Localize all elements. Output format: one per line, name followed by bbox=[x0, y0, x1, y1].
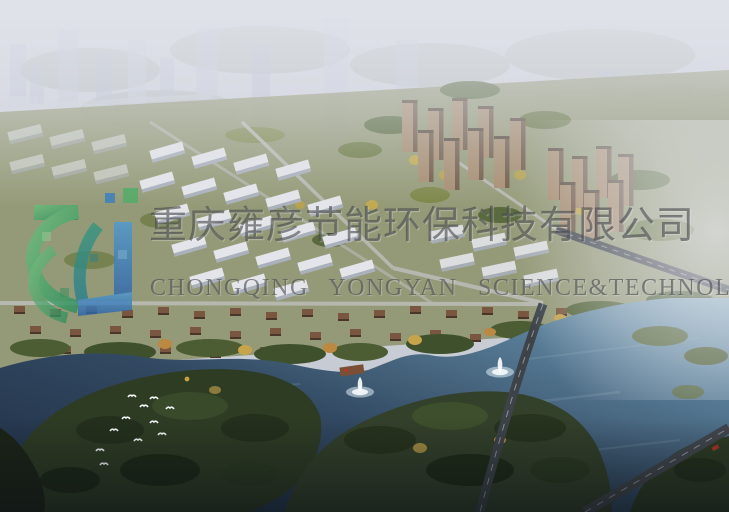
aerial-scene bbox=[0, 0, 729, 512]
right-haze bbox=[470, 120, 729, 400]
gold-statue bbox=[185, 377, 190, 382]
rendering-canvas: 重庆雍彦节能环保科技有限公司 CHONGQING YONGYAN SCIENCE… bbox=[0, 0, 729, 512]
bottom-vignette bbox=[0, 418, 729, 512]
